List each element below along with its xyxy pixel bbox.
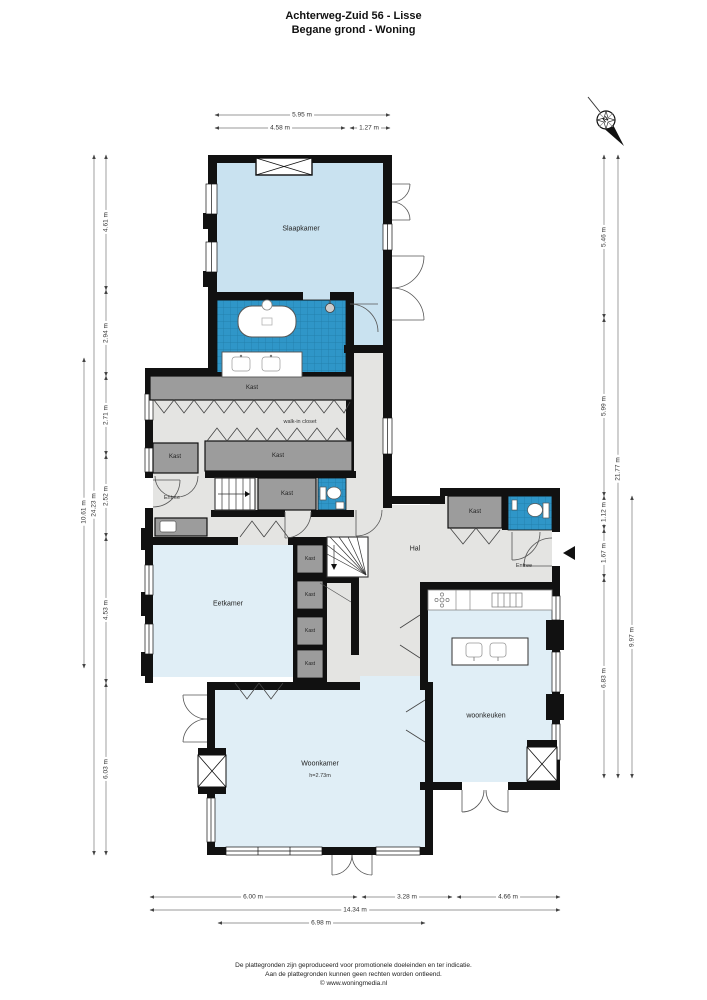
closet-label-row-left: Kast [169,454,181,460]
closet-label-col-3: Kast [305,628,315,634]
bedroom-top-window [256,158,312,175]
room-label-walkin-closet: walk-in closet [283,419,316,425]
room-label-eetkamer: Eetkamer [213,601,243,608]
dim-right-5: 6.83 m [601,666,608,690]
kitchen-chimney [527,740,557,788]
room-label-woonkeuken: woonkeuken [466,713,505,720]
closet-label-col-2: Kast [305,592,315,598]
upper-stairs [215,478,255,510]
dim-left-3: 2.71 m [103,403,110,427]
room-label-slaapkamer: Slaapkamer [282,226,319,233]
room-label-entree-left: Entree [164,495,180,501]
floorplan-page: Achterweg-Zuid 56 - Lisse Begane grond -… [0,0,707,1000]
closet-label-col-1: Kast [305,556,315,562]
dim-top-total: 5.95 m [290,112,314,119]
dim-right-4: 1.67 m [601,541,608,565]
dim-right-1: 5.46 m [601,225,608,249]
kitchen-island [452,638,528,665]
fireplace-chimney [198,748,226,794]
disclaimer: De plattegronden zijn geproduceerd voor … [0,962,707,988]
dim-bottom-3: 4.66 m [496,894,520,901]
kitchen-counter [428,590,552,610]
dim-left-5: 4.53 m [103,598,110,622]
dim-top-right: 1.27 m [357,125,381,132]
dim-right-overall: 21.77 m [615,455,622,483]
closet-label-hal: Kast [469,509,481,515]
room-label-entree-right: Entree [516,563,532,569]
closet-label-top: Kast [246,385,258,391]
disclaimer-line-2: Aan de plattegronden kunnen geen rechten… [0,971,707,980]
dim-left-2: 2.94 m [103,321,110,345]
dim-bottom-partial: 6.98 m [309,920,333,927]
dim-bottom-1: 6.00 m [241,894,265,901]
disclaimer-line-1: De plattegronden zijn geproduceerd voor … [0,962,707,971]
room-label-hal: Hal [410,546,421,553]
entrance-arrow-icon [563,546,575,560]
dim-bottom-2: 3.28 m [395,894,419,901]
dim-left-6: 6.03 m [103,757,110,781]
dim-right-3: 1.12 m [601,500,608,524]
entree-cabinet-appliance [160,521,176,532]
disclaimer-line-3: © www.woningmedia.nl [0,980,707,989]
closet-label-row-wide: Kast [272,453,284,459]
dim-left-1: 4.61 m [103,210,110,234]
dim-bottom-total: 14.34 m [341,907,369,914]
dim-right-2: 5.99 m [601,394,608,418]
dim-left-4: 2.52 m [103,484,110,508]
room-label-woonkamer-height: h=2.73m [309,773,331,779]
dim-left-partial: 10.61 m [81,498,88,526]
closet-label-stairs: Kast [281,491,293,497]
closet-label-col-4: Kast [305,661,315,667]
double-vanity [222,352,302,377]
dim-left-overall: 24.23 m [91,491,98,519]
room-label-woonkamer: Woonkamer [301,761,339,768]
dim-right-partial: 9.97 m [629,625,636,649]
dim-top-left: 4.58 m [268,125,292,132]
